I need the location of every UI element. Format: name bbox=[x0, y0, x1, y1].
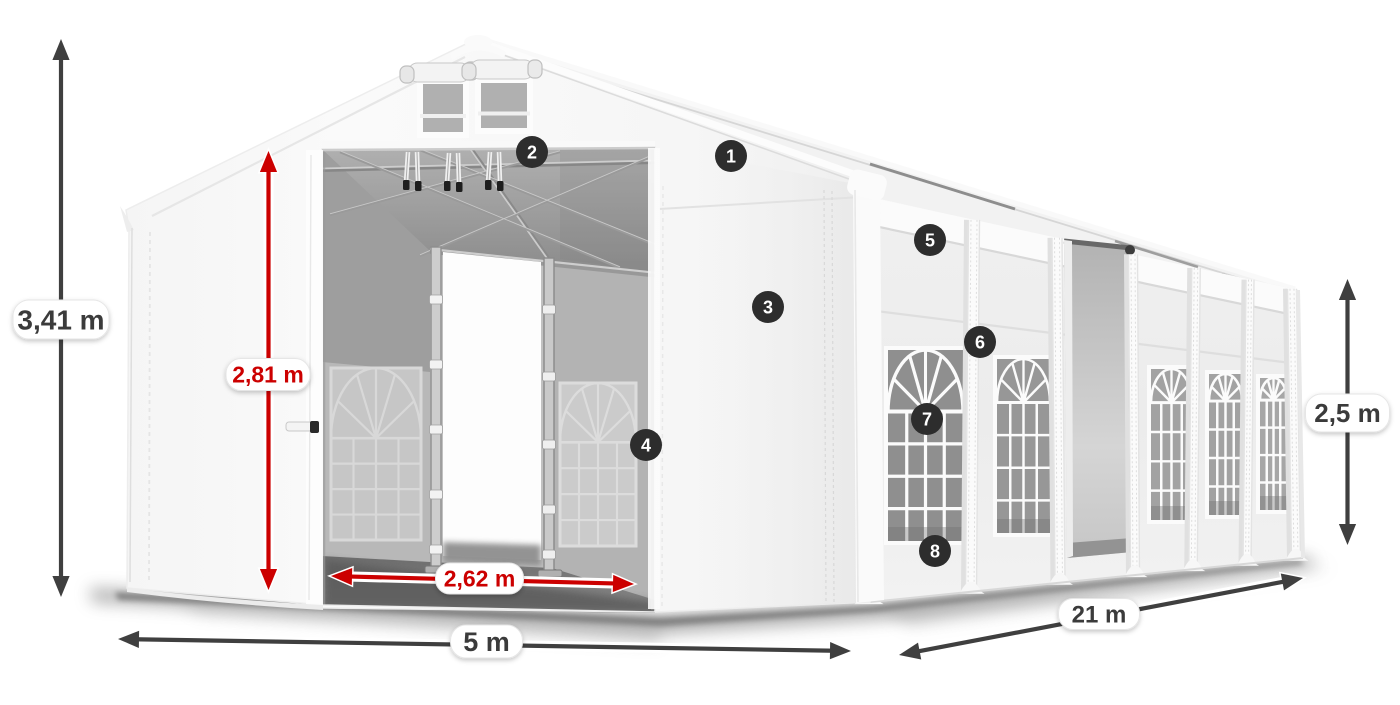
svg-text:2,5 m: 2,5 m bbox=[1314, 398, 1381, 428]
svg-text:3: 3 bbox=[763, 297, 773, 317]
svg-text:1: 1 bbox=[726, 146, 736, 166]
svg-text:2,81 m: 2,81 m bbox=[232, 362, 304, 388]
svg-text:2,62 m: 2,62 m bbox=[444, 566, 516, 592]
svg-text:4: 4 bbox=[641, 435, 651, 455]
svg-text:8: 8 bbox=[930, 541, 940, 561]
svg-text:21 m: 21 m bbox=[1072, 602, 1127, 629]
svg-text:5: 5 bbox=[925, 230, 935, 250]
svg-text:6: 6 bbox=[975, 332, 985, 352]
svg-text:7: 7 bbox=[922, 409, 932, 429]
svg-text:5 m: 5 m bbox=[463, 627, 510, 657]
svg-text:3,41 m: 3,41 m bbox=[17, 304, 104, 335]
svg-text:2: 2 bbox=[527, 142, 537, 162]
